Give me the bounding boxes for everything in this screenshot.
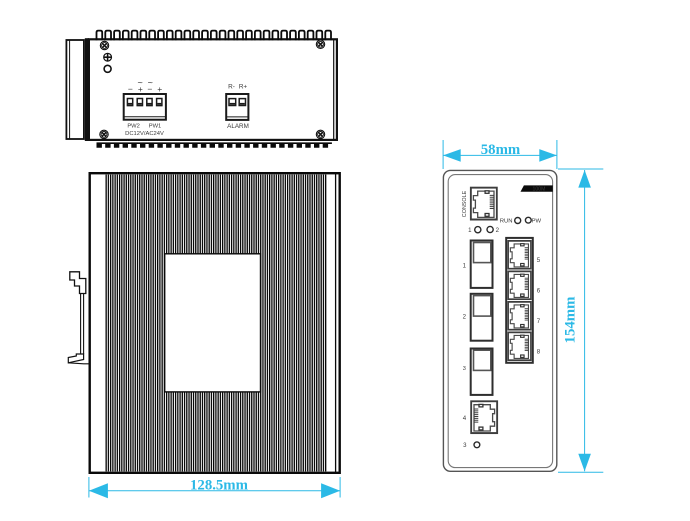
svg-text:ALARM: ALARM <box>227 123 249 130</box>
svg-text:154mm: 154mm <box>563 296 579 344</box>
svg-text:R-: R- <box>228 83 235 90</box>
svg-text:4: 4 <box>463 415 467 422</box>
svg-text:PW: PW <box>532 219 542 225</box>
svg-text:R+: R+ <box>239 83 248 90</box>
svg-text:−: − <box>128 84 133 94</box>
svg-text:3: 3 <box>463 366 466 372</box>
svg-text:CONSOLE: CONSOLE <box>462 190 468 217</box>
svg-text:PW1: PW1 <box>149 124 162 130</box>
svg-text:−: − <box>147 84 152 94</box>
svg-text:RUN: RUN <box>500 219 513 225</box>
svg-text:DC12V/AC24V: DC12V/AC24V <box>125 131 164 137</box>
svg-text:128.5mm: 128.5mm <box>190 478 249 494</box>
svg-text:+: + <box>157 84 162 94</box>
svg-text:PW2: PW2 <box>127 124 140 130</box>
svg-text:100M: 100M <box>533 187 546 193</box>
svg-text:58mm: 58mm <box>481 142 521 158</box>
svg-text:+: + <box>138 84 143 94</box>
